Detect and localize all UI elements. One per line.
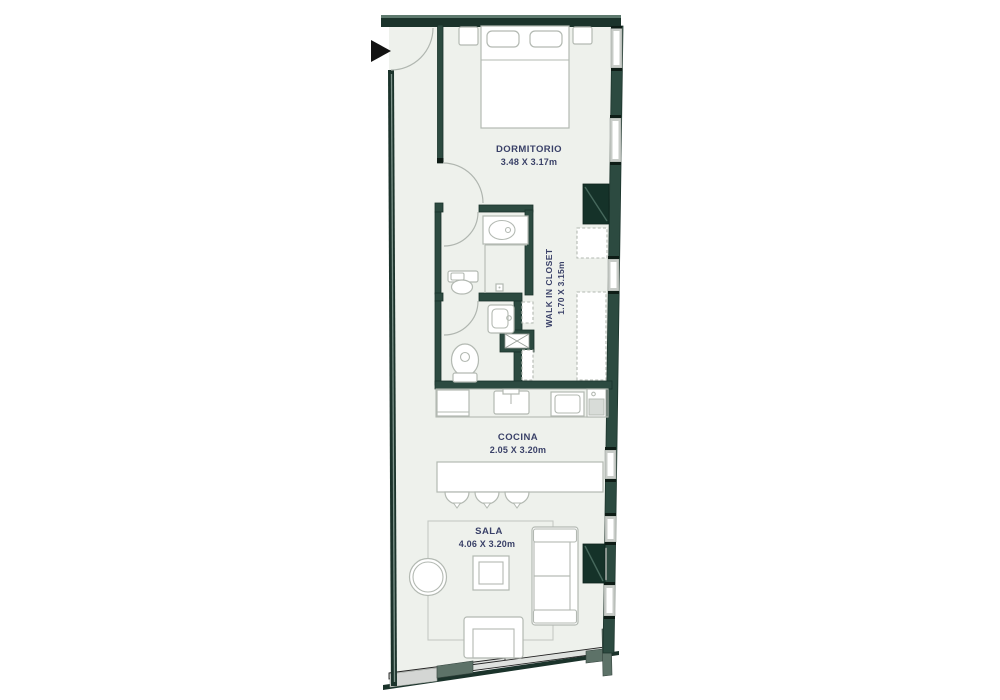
tv-unit-icon	[583, 544, 607, 583]
window-icon	[605, 447, 616, 482]
closet-shelf-icon	[522, 350, 533, 380]
cocina-label: COCINA	[498, 432, 538, 443]
bath2-stub	[435, 293, 443, 301]
ac-unit-icon	[583, 184, 609, 224]
bath1-stub	[435, 203, 443, 212]
walk-in-closet-dims: 1.70 X 3.15m	[556, 261, 566, 315]
hand-sink-icon	[488, 305, 514, 333]
closet-shelf-icon	[577, 228, 607, 258]
walk-in-closet-label: WALK IN CLOSET	[544, 248, 554, 327]
bath2-right-wall-upper	[514, 301, 522, 332]
pillow-icon	[530, 31, 562, 47]
closet-shelf-icon	[577, 292, 606, 380]
floor-plan: DORMITORIO 3.48 X 3.17m WALK IN CLOSET 1…	[0, 0, 1000, 700]
cocina-dims: 2.05 X 3.20m	[490, 445, 546, 455]
window-icon	[604, 582, 615, 619]
side-table-icon	[410, 559, 447, 596]
coffee-table-icon	[473, 556, 509, 590]
toilet-icon	[452, 344, 479, 382]
window-icon	[608, 256, 619, 294]
kitchen-sink-icon	[494, 389, 529, 414]
bath1-left-wall	[435, 212, 441, 294]
window-icon	[605, 513, 616, 545]
hall-bedroom-wall	[438, 25, 444, 163]
sala-dims: 4.06 X 3.20m	[459, 539, 515, 549]
dormitorio-label: DORMITORIO	[496, 144, 562, 155]
bath-divider-wall	[479, 293, 522, 301]
sofa-icon	[532, 527, 578, 625]
closet-shelf-icon	[522, 302, 533, 323]
stove-icon	[551, 392, 584, 416]
sala-label: SALA	[475, 526, 503, 537]
window-icon	[611, 26, 622, 71]
pillow-icon	[487, 31, 519, 47]
dormitorio-dims: 3.48 X 3.17m	[501, 157, 557, 167]
window-icon	[610, 115, 621, 165]
island	[437, 462, 603, 492]
floor-plan-canvas: DORMITORIO 3.48 X 3.17m WALK IN CLOSET 1…	[0, 0, 1000, 700]
bath2-right-wall-lower	[514, 352, 522, 385]
entrance-arrow-icon	[371, 40, 391, 62]
bath2-left-wall	[435, 301, 441, 385]
bed-icon	[481, 26, 569, 128]
fridge-icon	[437, 390, 469, 416]
washer-icon	[587, 389, 606, 417]
top-wall-highlight	[381, 15, 621, 18]
vanity-sink-icon	[483, 216, 528, 244]
nightstand-icon	[459, 27, 478, 45]
armchair-icon	[464, 617, 523, 658]
nightstand-icon	[573, 27, 592, 44]
